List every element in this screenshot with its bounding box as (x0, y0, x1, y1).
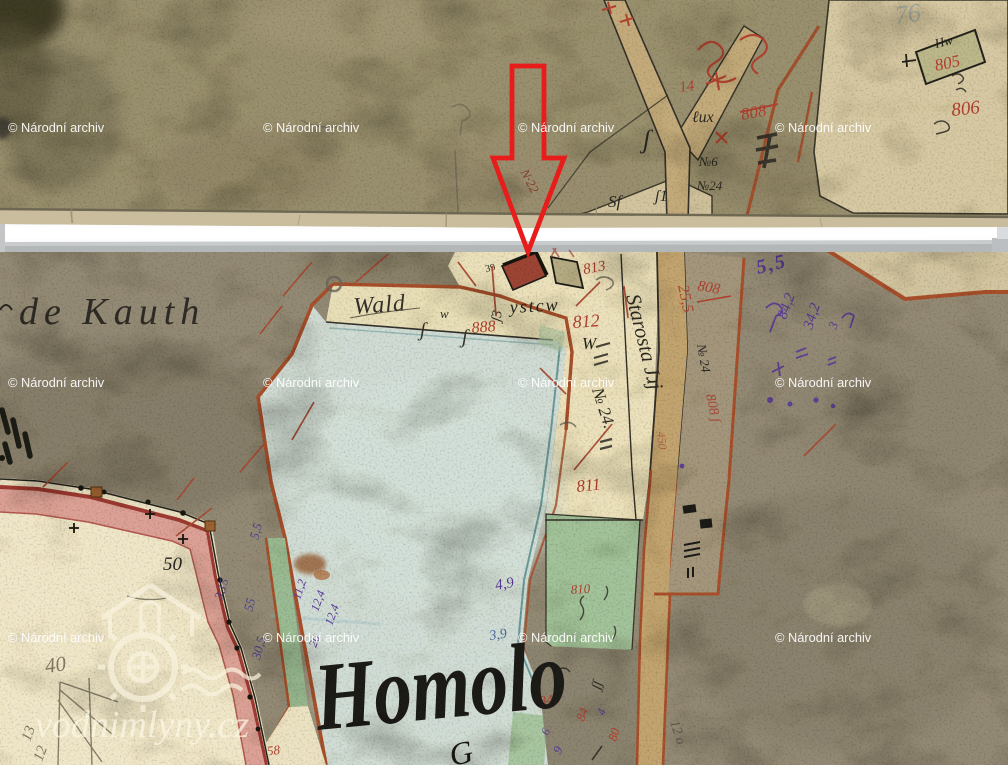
svg-text:W: W (582, 334, 598, 353)
svg-text:50: 50 (163, 554, 183, 575)
svg-text:© Národní archiv: © Národní archiv (8, 630, 105, 645)
svg-text:© Národní archiv: © Národní archiv (775, 630, 872, 645)
svg-text:© Národní archiv: © Národní archiv (263, 375, 360, 390)
svg-text:806: 806 (950, 97, 981, 121)
svg-text:w: w (440, 306, 449, 321)
svg-text:ℓux: ℓux (692, 109, 714, 126)
svg-text:© Národní archiv: © Národní archiv (518, 375, 615, 390)
svg-text:© Národní archiv: © Národní archiv (8, 375, 105, 390)
svg-text:812: 812 (572, 310, 600, 332)
svg-text:810: 810 (570, 581, 591, 597)
svg-text:© Národní archiv: © Národní archiv (518, 630, 615, 645)
svg-text:vodnimlyny.cz: vodnimlyny.cz (35, 704, 249, 746)
svg-text:№6: №6 (698, 154, 718, 169)
svg-text:40: 40 (43, 651, 68, 678)
svg-text:450: 450 (654, 431, 670, 450)
svg-text:76: 76 (893, 0, 923, 30)
svg-text:ʃ1: ʃ1 (653, 188, 668, 205)
svg-text:ystcw: ystcw (507, 294, 560, 317)
svg-text:14: 14 (678, 78, 696, 96)
svg-text:© Národní archiv: © Národní archiv (263, 630, 360, 645)
svg-text:© Národní archiv: © Národní archiv (8, 120, 105, 135)
svg-text:© Národní archiv: © Národní archiv (263, 120, 360, 135)
svg-text:© Národní archiv: © Národní archiv (518, 120, 615, 135)
svg-text:Sf: Sf (608, 192, 624, 211)
svg-text:811: 811 (575, 475, 601, 496)
svg-text:© Národní archiv: © Národní archiv (775, 375, 872, 390)
svg-text:© Národní archiv: © Národní archiv (775, 120, 872, 135)
svg-text:№24: №24 (696, 178, 723, 193)
svg-text:de Kauth: de Kauth (19, 291, 205, 333)
svg-text:4,9: 4,9 (494, 575, 516, 594)
